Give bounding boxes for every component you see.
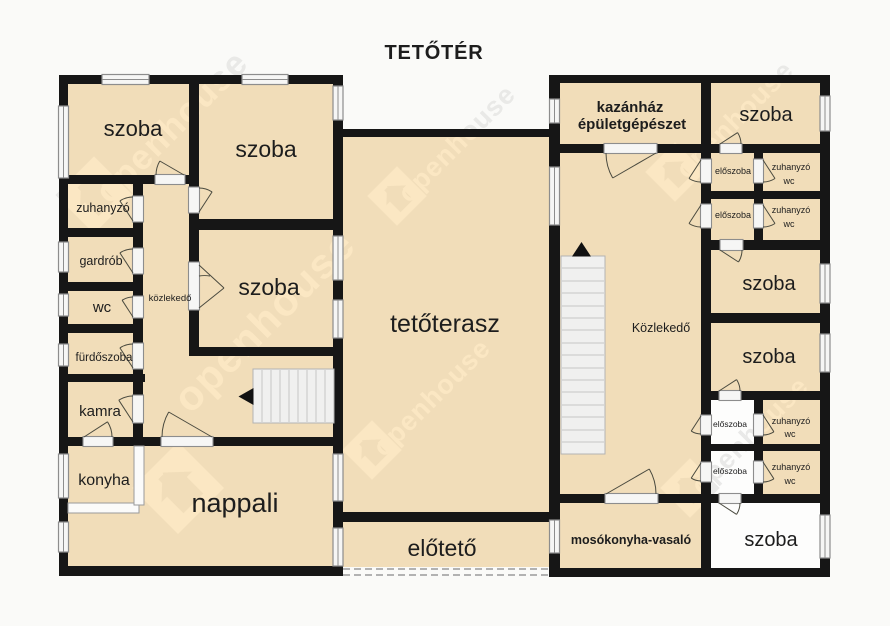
svg-text:tetőterasz: tetőterasz (390, 310, 500, 338)
svg-text:zuhanyzó: zuhanyzó (772, 416, 811, 426)
svg-text:fürdőszoba: fürdőszoba (76, 352, 134, 364)
svg-text:szoba: szoba (742, 346, 796, 368)
svg-text:Közlekedő: Közlekedő (632, 321, 690, 335)
svg-text:wc: wc (784, 429, 796, 439)
svg-text:szoba: szoba (742, 273, 796, 295)
svg-text:zuhanyzó: zuhanyzó (772, 205, 811, 215)
svg-text:előszoba: előszoba (715, 166, 751, 176)
svg-text:előszoba: előszoba (713, 419, 747, 429)
svg-text:előszoba: előszoba (715, 210, 751, 220)
svg-text:gardrób: gardrób (79, 254, 122, 268)
svg-text:wc: wc (783, 219, 795, 229)
svg-text:szoba: szoba (104, 116, 163, 141)
svg-text:szoba: szoba (739, 104, 793, 126)
svg-text:szoba: szoba (744, 529, 798, 551)
svg-text:zuhanyzó: zuhanyzó (772, 462, 811, 472)
svg-text:épületgépészet: épületgépészet (578, 116, 686, 133)
svg-text:wc: wc (784, 476, 796, 486)
svg-text:kazánház: kazánház (597, 99, 664, 116)
svg-text:kamra: kamra (79, 403, 121, 420)
svg-text:szoba: szoba (235, 136, 297, 162)
svg-text:szoba: szoba (238, 274, 300, 300)
svg-text:mosókonyha-vasaló: mosókonyha-vasaló (571, 533, 692, 547)
svg-text:előtető: előtető (407, 535, 476, 561)
svg-text:zuhanyzó: zuhanyzó (772, 162, 811, 172)
svg-text:wc: wc (783, 176, 795, 186)
svg-text:közlekedő: közlekedő (149, 293, 192, 304)
svg-text:előszoba: előszoba (713, 466, 747, 476)
svg-text:TETŐTÉR: TETŐTÉR (385, 41, 484, 64)
svg-text:nappali: nappali (191, 488, 278, 518)
svg-text:konyha: konyha (78, 472, 130, 489)
svg-text:zuhanyzó: zuhanyzó (76, 201, 130, 215)
svg-text:wc: wc (92, 299, 112, 316)
